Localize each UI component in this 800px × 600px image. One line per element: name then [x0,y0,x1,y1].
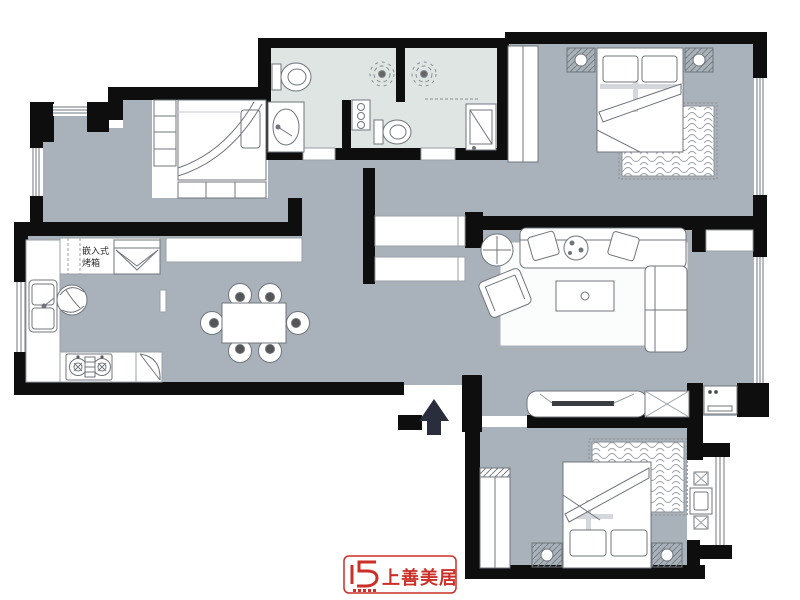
balcony-chair [694,516,708,529]
kitchen-sink [29,280,57,332]
gas-stove [66,354,112,380]
window [53,104,87,116]
wardrobe [480,468,510,568]
vanity-sink [268,102,304,152]
living-niche-cabinet [706,230,753,251]
wardrobe [154,100,176,166]
dining-table [222,303,286,343]
water-heater [704,386,737,414]
single-bed [178,100,266,180]
washing-machine [466,104,496,150]
north-arrow-icon [419,399,449,435]
brand-logo: 上善美居 [344,556,458,593]
hall-cabinet [375,216,465,246]
nightstand [532,543,562,567]
shoe-cabinet [645,391,689,417]
nightstand [567,48,595,72]
hall-cabinet [375,257,465,281]
nightstand [685,48,713,72]
window [30,148,43,196]
sideboard-cabinet [166,238,302,262]
bath-shelf [352,100,370,130]
bed-bench [178,182,266,198]
tv-stand [527,391,647,417]
wardrobe [508,46,538,162]
window [754,257,766,383]
plant [57,285,87,315]
bedroom2-floor [103,128,125,232]
toilet [272,63,311,91]
double-bed [597,48,683,152]
logo-icon [352,562,377,586]
nightstand [652,543,682,567]
sofa [520,228,686,268]
balcony-table [690,488,712,514]
floor-plan-canvas: 嵌入式 烤箱 [0,0,800,600]
oven-label-line2: 烤箱 [82,257,100,269]
built-in-oven [114,240,160,274]
coffee-table [556,281,614,311]
window [754,78,766,195]
floor-plan-page: 嵌入式 烤箱 [0,0,800,600]
chaise-lounge [645,266,687,352]
dining-chair [201,312,224,335]
double-bed [563,462,651,568]
side-table [481,234,513,266]
balcony-chair [694,472,708,485]
corner-door-leaf [136,352,162,382]
dining-chair [287,312,310,335]
toilet [374,120,411,144]
kitchen-door-track [160,290,166,312]
logo-sub-marks [353,589,376,592]
window [712,457,728,545]
oven-label-line1: 嵌入式 [82,245,109,257]
logo-text: 上善美居 [382,567,458,589]
